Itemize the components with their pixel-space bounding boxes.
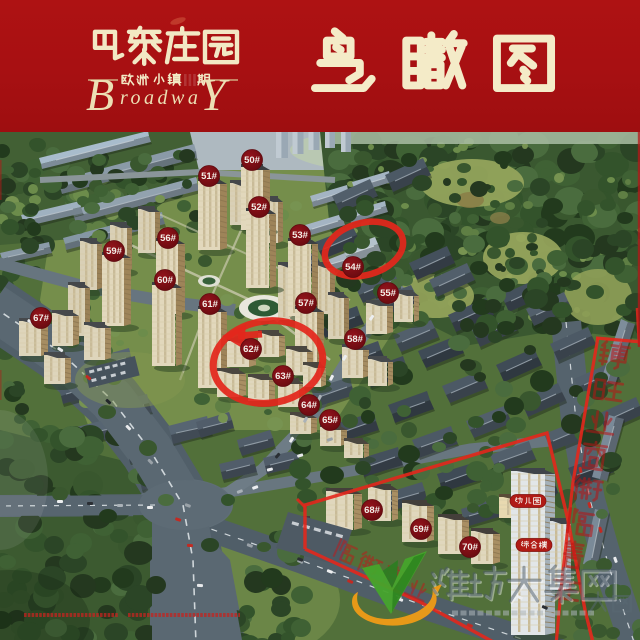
svg-text:Y: Y (200, 69, 230, 120)
svg-text:64#: 64# (301, 400, 318, 411)
svg-text:52#: 52# (251, 202, 268, 213)
svg-text:B: B (86, 69, 114, 120)
svg-text:60#: 60# (157, 275, 174, 286)
svg-text:67#: 67# (33, 313, 50, 324)
svg-text:61#: 61# (202, 299, 219, 310)
svg-text:55#: 55# (380, 288, 397, 299)
svg-text:62#: 62# (243, 344, 260, 355)
svg-text:56#: 56# (160, 233, 177, 244)
svg-text:63#: 63# (275, 371, 292, 382)
svg-text:50#: 50# (244, 155, 261, 166)
svg-text:68#: 68# (364, 505, 381, 516)
svg-text:58#: 58# (347, 334, 364, 345)
svg-text:70#: 70# (462, 542, 479, 553)
svg-text:69#: 69# (413, 524, 430, 535)
svg-text:roadwa: roadwa (120, 87, 201, 109)
svg-text:57#: 57# (298, 298, 315, 309)
svg-text:53#: 53# (292, 230, 309, 241)
svg-text:59#: 59# (106, 246, 123, 257)
svg-text:51#: 51# (201, 171, 218, 182)
svg-text:54#: 54# (345, 262, 362, 273)
svg-text:65#: 65# (322, 415, 339, 426)
